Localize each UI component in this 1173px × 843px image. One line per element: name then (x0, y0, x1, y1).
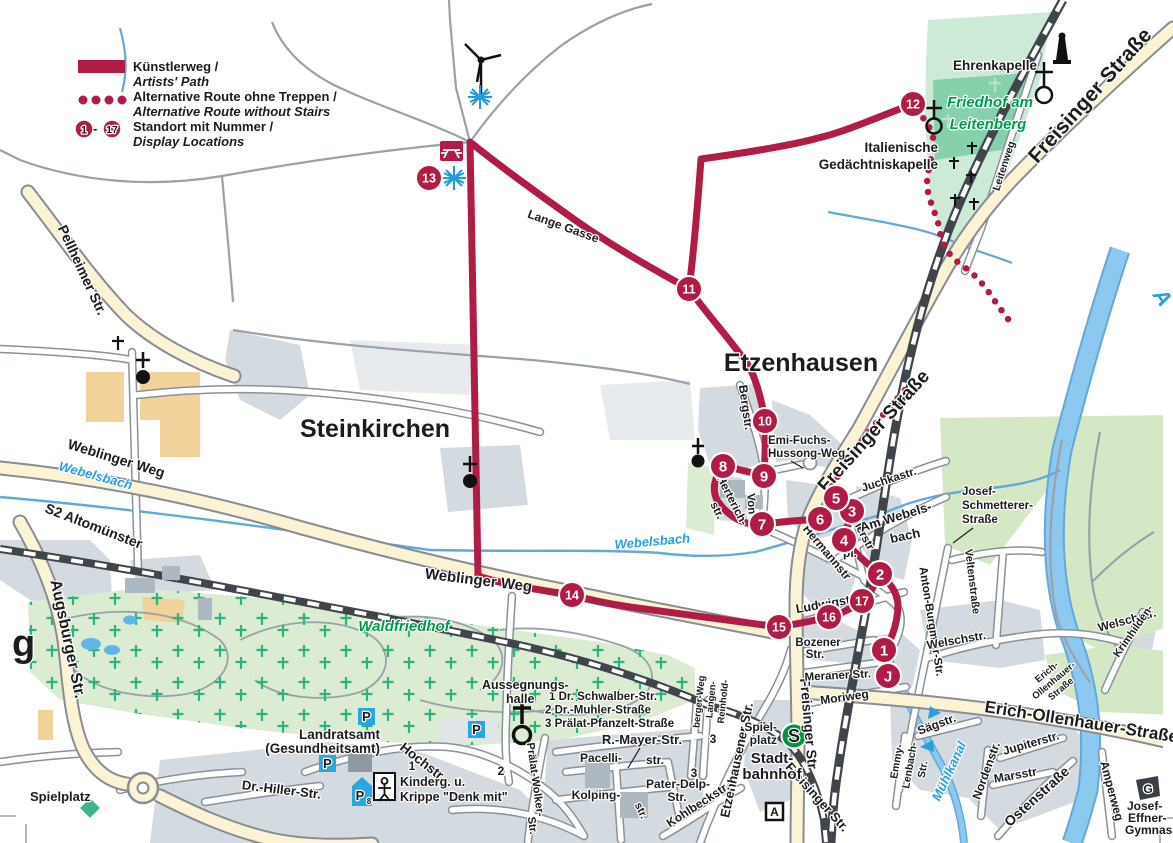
street-label-pacelli-1: Pacelli- (580, 751, 622, 765)
street-label-pacelli-2: str. (646, 753, 664, 767)
route-marker-4: 4 (831, 527, 857, 553)
route-marker-11: 11 (676, 276, 702, 302)
place-label-aussegnungs-2: halle (506, 692, 535, 706)
svg-text:1: 1 (81, 125, 87, 137)
place-label-italienische: Italienische (864, 140, 938, 155)
route-marker-1: 1 (871, 637, 897, 663)
svg-text:17: 17 (855, 595, 869, 609)
street-label-pater-delp-2: Str. (667, 790, 686, 804)
legend-route-label-en: Artists' Path (132, 74, 209, 89)
legend-alt-label-en: Alternative Route without Stairs (132, 104, 330, 119)
svg-text:A: A (770, 805, 779, 819)
picnic-area-icon (440, 141, 463, 161)
street-ref-3: 3 (710, 732, 717, 746)
route-marker-j: J (875, 663, 901, 689)
svg-text:15: 15 (772, 621, 786, 635)
place-label-kinderg-1: Kinderg. u. (400, 775, 465, 789)
route-marker-6: 6 (807, 506, 833, 532)
svg-text:12: 12 (906, 98, 920, 112)
svg-text:4: 4 (840, 533, 849, 550)
street-label-pater-delp-1: Pater-Delp- (646, 777, 710, 791)
svg-text:16: 16 (822, 611, 836, 625)
place-label-stadtbahnhof-2: bahnhof (742, 766, 802, 783)
street-key-3: 3 Prälat-Pfanzelt-Straße (545, 718, 674, 730)
route-marker-10: 10 (752, 408, 778, 434)
legend-standort-label-en: Display Locations (133, 134, 244, 149)
legend-alt-label-de: Alternative Route ohne Treppen / (133, 89, 337, 104)
place-label-ehrenkapelle: Ehrenkapelle (953, 58, 1038, 73)
svg-text:17: 17 (106, 124, 118, 136)
svg-text:8: 8 (367, 797, 372, 806)
place-label-friedhof-2: Leitenberg (950, 116, 1027, 133)
street-label-r-mayer: R.-Mayer-Str. (602, 732, 682, 747)
street-label-praelat-wolker-2: Str. (525, 816, 539, 835)
svg-text:14: 14 (565, 589, 579, 603)
legend-badge-dash: - (93, 121, 97, 136)
autobahn-sign: A (766, 803, 783, 820)
svg-text:8: 8 (719, 459, 727, 476)
street-ref-3b: 3 (691, 766, 698, 780)
svg-text:3: 3 (848, 504, 856, 521)
gymnasium-sign: G (1136, 776, 1160, 800)
street-key-2: 2 Dr.-Muhler-Straße (545, 705, 651, 717)
parking-icon: P (468, 721, 485, 738)
street-label-kolping-1: Kolping- (572, 788, 621, 802)
legend-standort-label-de: Standort mit Nummer / (133, 119, 274, 134)
street-label-bozener-1: Bozener (795, 637, 841, 649)
svg-text:6: 6 (816, 512, 824, 529)
kuenstlerweg-map: S P P P P 8 A G Steinkirchen Etzenhausen… (0, 0, 1173, 843)
street-label-josef-schmetterer-1: Josef- (962, 486, 996, 498)
place-label-aussegnungs-1: Aussegnungs- (482, 678, 569, 692)
svg-text:7: 7 (758, 517, 766, 534)
svg-text:2: 2 (876, 567, 884, 584)
place-label-stadtbahnhof-1: Stadt- (751, 750, 794, 767)
route-marker-17: 17 (849, 588, 875, 614)
svg-text:9: 9 (760, 469, 768, 486)
partial-label-g: g (12, 623, 35, 665)
place-label-spielplatz-s-2: platz (750, 733, 777, 747)
route-marker-14: 14 (559, 582, 585, 608)
place-label-gedaechtniskapelle: Gedächtniskapelle (819, 157, 939, 172)
svg-text:J: J (884, 669, 892, 686)
svg-text:P: P (356, 788, 365, 803)
legend-badge-start: 1 (75, 120, 93, 138)
svg-text:13: 13 (422, 172, 436, 186)
parking-icon: P (319, 755, 336, 772)
svg-text:1: 1 (880, 643, 888, 660)
place-label-steinkirchen: Steinkirchen (300, 415, 450, 443)
route-marker-7: 7 (749, 511, 775, 537)
route-marker-12: 12 (900, 91, 926, 117)
route-marker-13: 13 (416, 165, 442, 191)
roundabout-island (138, 783, 149, 794)
svg-text:P: P (323, 756, 332, 771)
legend-route-label-de: Künstlerweg / (133, 59, 219, 74)
svg-text:10: 10 (758, 415, 772, 429)
svg-text:P: P (362, 709, 371, 724)
route-marker-2: 2 (867, 561, 893, 587)
street-key-1: 1 Dr. Schwalber-Str. (549, 691, 657, 703)
place-label-spielplatz-s-1: Spiel- (744, 720, 777, 734)
route-marker-8: 8 (710, 453, 736, 479)
place-label-friedhof-1: Friedhof am (947, 94, 1033, 111)
street-label-emi-fuchs-1: Emi-Fuchs- (768, 435, 831, 447)
place-label-spielplatz-sw: Spielplatz (30, 789, 91, 804)
place-label-landratsamt-1: Landratsamt (299, 727, 381, 742)
street-label-bozener-2: Str. (806, 649, 825, 661)
kindergarten-icon (374, 773, 395, 801)
svg-text:5: 5 (832, 491, 840, 508)
svg-text:11: 11 (682, 283, 695, 297)
svg-text:S: S (788, 726, 800, 746)
place-label-kinderg-2: Krippe "Denk mit" (400, 790, 508, 804)
street-label-emi-fuchs-2: Hussong-Weg (768, 448, 845, 460)
map-canvas: S P P P P 8 A G Steinkirchen Etzenhausen… (0, 0, 1173, 843)
street-label-josef-schmetterer-3: Straße (962, 514, 998, 526)
place-label-etzenhausen: Etzenhausen (724, 349, 878, 377)
place-label-josef-effner-3: Gymnasium (1125, 823, 1173, 837)
legend-route-swatch (78, 60, 125, 73)
place-label-landratsamt-2: (Gesundheitsamt) (265, 741, 380, 756)
street-ref-1: 1 (409, 759, 416, 773)
svg-text:P: P (472, 722, 481, 737)
route-marker-16: 16 (816, 604, 842, 630)
svg-text:G: G (1143, 782, 1152, 796)
place-label-waldfriedhof: Waldfriedhof (358, 618, 451, 635)
parking-icon: P (358, 708, 375, 725)
route-marker-9: 9 (751, 463, 777, 489)
route-marker-15: 15 (766, 614, 792, 640)
street-label-josef-schmetterer-2: Schmetterer- (962, 500, 1033, 512)
legend-badge-end: 17 (103, 120, 121, 138)
street-ref-2: 2 (498, 764, 505, 778)
